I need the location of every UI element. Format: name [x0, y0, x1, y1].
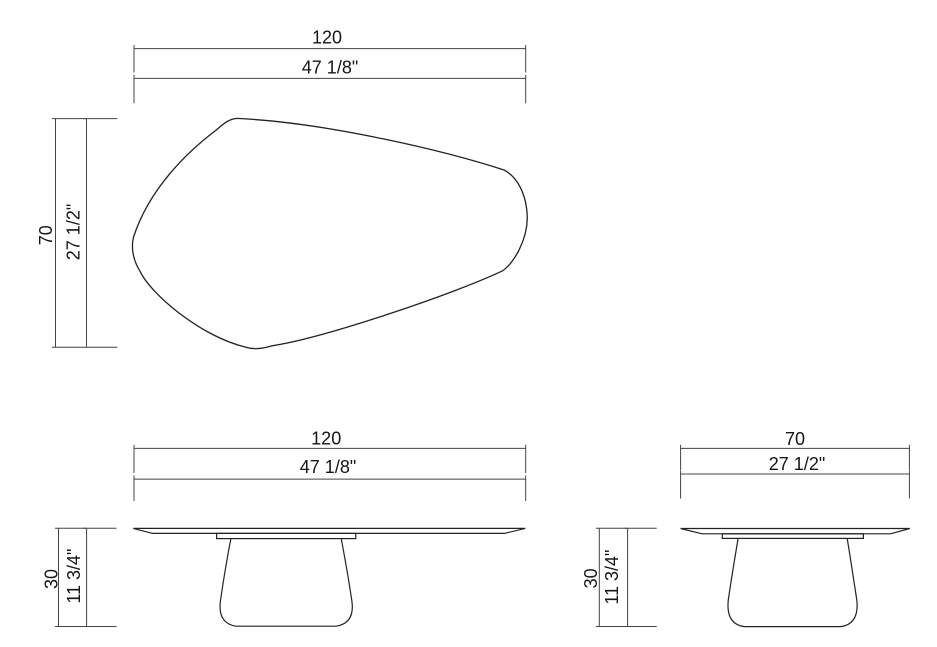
svg-text:70: 70 — [785, 429, 805, 449]
svg-text:30: 30 — [581, 568, 601, 588]
svg-text:120: 120 — [312, 28, 342, 48]
svg-text:120: 120 — [311, 428, 341, 448]
svg-text:27 1/2": 27 1/2" — [64, 204, 84, 260]
svg-text:70: 70 — [36, 225, 56, 245]
svg-text:30: 30 — [42, 569, 62, 589]
svg-text:11 3/4": 11 3/4" — [64, 549, 84, 604]
svg-text:47 1/8": 47 1/8" — [300, 457, 356, 477]
svg-text:47 1/8": 47 1/8" — [302, 57, 358, 77]
svg-text:27 1/2": 27 1/2" — [769, 454, 825, 474]
svg-text:11 3/4": 11 3/4" — [602, 550, 622, 605]
